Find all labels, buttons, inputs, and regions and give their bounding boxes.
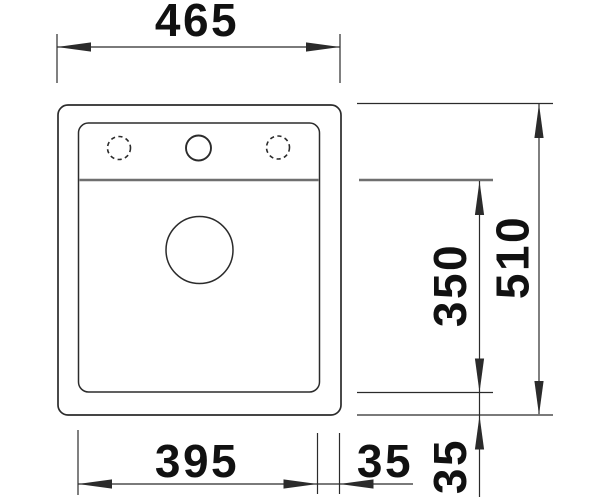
arrow-up-bottom-rim (475, 416, 484, 450)
dim-label-total-depth: 510 (487, 215, 539, 299)
dim-label-bowl-depth: 350 (424, 243, 476, 327)
sink-outer-outline (58, 105, 341, 415)
drawing-canvas: 465 510 350 35 395 3 (0, 0, 610, 500)
arrow-right-bowl-width (284, 479, 318, 488)
drain-hole (166, 217, 233, 284)
dim-label-total-width: 465 (155, 0, 239, 46)
sink-body (58, 105, 341, 415)
sink-dimension-drawing: 465 510 350 35 395 3 (0, 0, 610, 500)
arrow-up-total-depth (534, 104, 543, 138)
dim-label-right-rim: 35 (357, 435, 413, 487)
arrow-left-bowl-width (78, 479, 112, 488)
arrow-left (57, 42, 91, 51)
dim-label-bottom-rim: 35 (424, 438, 476, 494)
arrow-down-total-depth (534, 381, 543, 415)
tap-hole-center (186, 136, 211, 161)
arrow-up-bowl-depth (475, 181, 484, 215)
tap-hole-right-optional (267, 136, 290, 159)
sink-bowl-outline (79, 123, 320, 392)
tap-hole-left-optional (108, 137, 131, 160)
arrow-right (306, 42, 340, 51)
arrow-down-bowl-depth (475, 359, 484, 393)
dim-label-bowl-width: 395 (155, 435, 239, 487)
